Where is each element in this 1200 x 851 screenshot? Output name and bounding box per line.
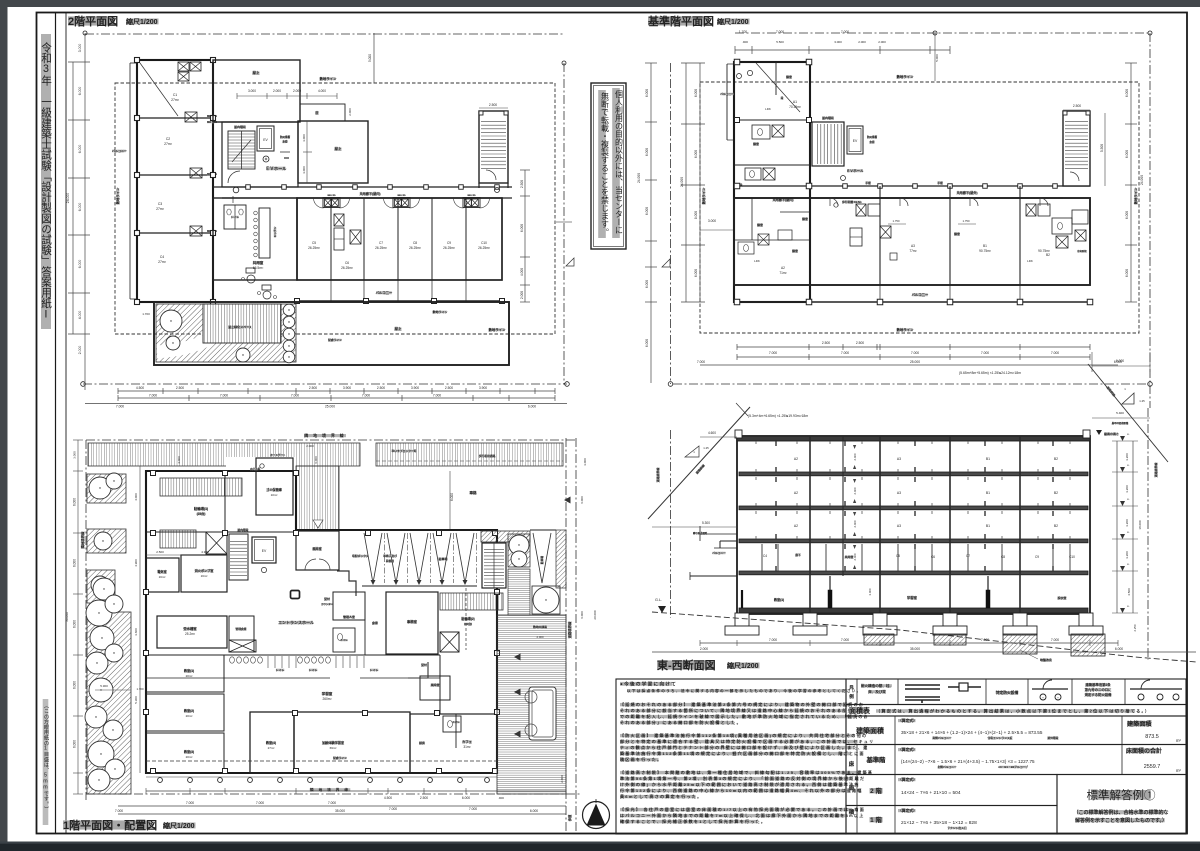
svg-text:3.000: 3.000 — [302, 166, 306, 174]
svg-text:MB・PS: MB・PS — [467, 194, 476, 197]
svg-text:(5.3m+4m+6.65m) ×1.25≒19.93m>1: (5.3m+4m+6.65m) ×1.25≒19.93m>18m — [748, 414, 808, 418]
svg-text:2.000: 2.000 — [306, 444, 314, 448]
svg-text:道路境界線: 道路境界線 — [1153, 462, 1158, 477]
svg-text:ホテル脇: ホテル脇 — [250, 467, 261, 471]
svg-text:8.000: 8.000 — [694, 211, 698, 219]
svg-text:7.000: 7.000 — [149, 394, 157, 398]
svg-text:27m²: 27m² — [158, 260, 167, 264]
svg-text:5.000: 5.000 — [368, 54, 372, 62]
svg-text:C5: C5 — [312, 241, 316, 245]
svg-text:南側バルコニー: 南側バルコニー — [932, 736, 952, 740]
svg-text:での距離を記入し、延焼ラインを破線で図示した。敷地が準防火地: での距離を記入し、延焼ラインを破線で図示した。敷地が準防火地域に指定されているた… — [620, 713, 869, 719]
svg-text:2.500: 2.500 — [377, 386, 385, 390]
svg-text:屋上緑化スペース: 屋上緑化スペース — [228, 324, 252, 329]
svg-text:面: 面 — [849, 784, 855, 792]
svg-text:6.000: 6.000 — [694, 89, 698, 97]
svg-text:車いすブロック一時: 車いすブロック一時 — [391, 449, 416, 453]
svg-text:2.000: 2.000 — [273, 89, 281, 93]
svg-text:2.000: 2.000 — [878, 40, 886, 44]
svg-text:24.000: 24.000 — [1140, 175, 1144, 185]
svg-text:準法第56条第1項第一号、第2項、別表第3の規定により、「前: 準法第56条第1項第一号、第2項、別表第3の規定により、「前面道路の反対側の境界… — [620, 775, 865, 781]
svg-text:3.900: 3.900 — [479, 386, 487, 390]
svg-text:←: ← — [286, 315, 289, 319]
svg-text:基準階: 基準階 — [865, 755, 886, 764]
svg-text:屋内階段: 屋内階段 — [234, 124, 246, 129]
svg-text:カウンター: カウンター — [321, 602, 334, 606]
svg-text:屋上: 屋上 — [334, 146, 342, 151]
svg-text:屋外階段: 屋外階段 — [1047, 736, 1058, 740]
svg-text:消火ポンプ室: 消火ポンプ室 — [194, 568, 214, 573]
svg-text:7.000: 7.000 — [469, 807, 477, 811]
svg-text:第九号のニのロに: 第九号のニのロに — [1084, 687, 1112, 692]
svg-text:C6: C6 — [345, 261, 349, 265]
svg-text:70.25m²: 70.25m² — [789, 105, 801, 109]
svg-text:7.000: 7.000 — [220, 394, 228, 398]
svg-text:2.500: 2.500 — [156, 550, 164, 554]
svg-text:教室(2): 教室(2) — [183, 708, 194, 713]
svg-text:C8: C8 — [413, 241, 417, 245]
svg-text:7.000: 7.000 — [389, 807, 397, 811]
svg-text:縮尺1/200: 縮尺1/200 — [717, 17, 749, 26]
svg-text:トイレ: トイレ — [231, 215, 240, 219]
svg-text:床、及び梁: 床、及び梁 — [868, 689, 886, 694]
svg-text:受付: 受付 — [324, 596, 330, 601]
svg-text:m²: m² — [1176, 738, 1181, 743]
svg-text:3.200: 3.200 — [1125, 485, 1129, 493]
svg-text:25.000: 25.000 — [910, 360, 920, 364]
svg-text:寝室: 寝室 — [953, 231, 960, 236]
svg-text:風除室: 風除室 — [430, 682, 439, 687]
svg-text:7.000: 7.000 — [776, 30, 784, 34]
svg-text:加齢体験学習室: 加齢体験学習室 — [321, 740, 345, 745]
svg-text:1.25: 1.25 — [703, 446, 709, 450]
svg-text:77m²: 77m² — [909, 249, 916, 253]
svg-text:7.000: 7.000 — [981, 638, 989, 642]
svg-text:宅配ボックス: 宅配ボックス — [352, 554, 369, 558]
svg-text:27m²: 27m² — [156, 207, 165, 211]
svg-text:4.000: 4.000 — [520, 268, 524, 276]
svg-text:電気室: 電気室 — [157, 569, 167, 574]
svg-text:バルコ二ー: バルコ二ー — [720, 92, 734, 96]
svg-text:トイレ: トイレ — [369, 668, 378, 672]
svg-text:4.900: 4.900 — [134, 559, 138, 567]
svg-text:C3: C3 — [158, 202, 162, 206]
svg-text:7.000: 7.000 — [362, 394, 370, 398]
svg-text:凡: 凡 — [849, 684, 854, 691]
svg-text:3.000: 3.000 — [248, 89, 256, 93]
svg-text:カフェ: カフェ — [462, 739, 472, 744]
svg-text:27m²: 27m² — [171, 98, 180, 102]
svg-text:2.500: 2.500 — [520, 180, 524, 188]
svg-text:【延焼のおそれのある部分】 建築基準法第2条第六号の規定によ: 【延焼のおそれのある部分】 建築基準法第2条第六号の規定により、建築物の外壁の開… — [620, 701, 864, 707]
svg-text:敷地ライン: 敷地ライン — [432, 309, 447, 314]
svg-text:27m²: 27m² — [164, 142, 173, 146]
svg-text:24.000: 24.000 — [637, 173, 641, 183]
svg-text:1.700: 1.700 — [142, 312, 150, 316]
svg-text:A3: A3 — [911, 244, 915, 248]
svg-text:{14×(24−2) −7×6 − 1.5×6 + 21×(: {14×(24−2) −7×6 − 1.5×6 + 21×(4+3.5) − 1… — [901, 759, 1035, 764]
svg-text:2559.7: 2559.7 — [1144, 764, 1161, 770]
svg-text:4.500: 4.500 — [384, 796, 392, 800]
svg-text:26.25m²: 26.25m² — [478, 246, 490, 250]
svg-text:7.000: 7.000 — [981, 351, 989, 355]
svg-text:7.000: 7.000 — [769, 638, 777, 642]
svg-text:A3: A3 — [897, 524, 901, 528]
svg-text:廊下: 廊下 — [794, 553, 801, 557]
svg-text:確保することで、採光補正係数を1として採光計算を行った。: 確保することで、採光補正係数を1として採光計算を行った。 — [619, 818, 766, 824]
svg-text:25.000: 25.000 — [325, 405, 335, 409]
svg-text:段: 段 — [781, 96, 784, 100]
svg-text:隣 地 境 界 線: 隣 地 境 界 線 — [304, 433, 345, 438]
svg-text:7.000: 7.000 — [1051, 351, 1059, 355]
svg-text:6.000: 6.000 — [1125, 89, 1129, 97]
svg-text:2.000: 2.000 — [700, 647, 708, 651]
svg-text:A2: A2 — [781, 266, 785, 270]
svg-text:6.000: 6.000 — [462, 796, 470, 800]
svg-text:26.25m²: 26.25m² — [375, 246, 387, 250]
svg-text:例: 例 — [849, 693, 854, 700]
svg-text:5.300: 5.300 — [100, 684, 108, 688]
svg-text:27m²: 27m² — [268, 746, 275, 750]
svg-text:管理人室: 管理人室 — [343, 614, 355, 619]
svg-text:バルコ二ー: バルコ二ー — [376, 290, 393, 295]
svg-text:6.000: 6.000 — [645, 339, 649, 347]
svg-text:東-西断面図: 東-西断面図 — [657, 658, 716, 672]
svg-text:90.75m²: 90.75m² — [1038, 249, 1050, 253]
svg-text:共用廊下(屋外): 共用廊下(屋外) — [956, 190, 977, 195]
svg-text:6.000: 6.000 — [78, 203, 82, 212]
svg-text:2.000: 2.000 — [293, 89, 301, 93]
svg-text:2.000: 2.000 — [537, 635, 544, 639]
svg-text:26.25m²: 26.25m² — [443, 246, 455, 250]
svg-text:4.000: 4.000 — [78, 311, 82, 320]
svg-text:2.500: 2.500 — [445, 386, 453, 390]
svg-text:4.500: 4.500 — [136, 386, 144, 390]
svg-text:1.700: 1.700 — [739, 30, 747, 34]
svg-text:G.L.: G.L. — [655, 598, 662, 602]
svg-text:厨房: 厨房 — [419, 740, 425, 745]
svg-text:屋上: 屋上 — [252, 70, 260, 75]
svg-text:敷地ライン: 敷地ライン — [319, 76, 338, 81]
svg-text:26.25m²: 26.25m² — [409, 246, 421, 250]
svg-text:敷地内通路: 敷地内通路 — [533, 625, 547, 629]
svg-text:35.000: 35.000 — [335, 809, 345, 813]
svg-text:令和3年 一級建築士試験「設計製図の試験」答案用紙Ⅰ: 令和3年 一級建築士試験「設計製図の試験」答案用紙Ⅰ — [40, 41, 52, 320]
svg-text:建築基準法第2条: 建築基準法第2条 — [1085, 682, 1111, 687]
svg-text:EV: EV — [853, 139, 858, 143]
svg-text:オートゲート: オートゲート — [270, 453, 286, 457]
svg-text:6.000: 6.000 — [645, 148, 649, 156]
svg-text:7.000: 7.000 — [186, 801, 194, 805]
svg-text:2.400: 2.400 — [853, 553, 857, 560]
svg-text:バルコニー: バルコニー — [112, 148, 127, 153]
svg-text:6.000: 6.000 — [73, 740, 77, 748]
svg-text:3.000: 3.000 — [834, 40, 842, 44]
svg-text:1.750: 1.750 — [963, 219, 970, 223]
svg-text:3.000: 3.000 — [868, 588, 872, 595]
svg-text:B2: B2 — [1046, 253, 1050, 257]
svg-text:4.500: 4.500 — [1127, 588, 1131, 596]
svg-text:873.5: 873.5 — [1145, 734, 1159, 740]
svg-text:歩行距離 19.5m: 歩行距離 19.5m — [842, 200, 862, 204]
svg-text:7.000: 7.000 — [291, 394, 299, 398]
svg-text:エントランスホール: エントランスホール — [278, 619, 314, 625]
svg-text:2.000: 2.000 — [520, 291, 524, 299]
svg-text:3.200: 3.200 — [1125, 453, 1129, 461]
svg-text:16m²: 16m² — [159, 575, 166, 579]
svg-text:屋内階段: 屋内階段 — [822, 115, 834, 120]
svg-text:4.000: 4.000 — [134, 493, 138, 501]
svg-text:トイレ: トイレ — [275, 668, 284, 672]
svg-text:2.500: 2.500 — [420, 796, 428, 800]
svg-text:B1: B1 — [986, 457, 990, 461]
svg-text:縮尺1/200: 縮尺1/200 — [163, 821, 195, 830]
svg-text:（算定式）: （算定式） — [898, 808, 917, 813]
svg-text:2.000: 2.000 — [348, 108, 352, 116]
svg-text:6.000: 6.000 — [694, 150, 698, 158]
svg-text:●今後の学習に向けて: ●今後の学習に向けて — [620, 681, 677, 688]
svg-text:敷地ライン: 敷地ライン — [488, 327, 507, 332]
svg-text:7.000: 7.000 — [697, 360, 705, 364]
svg-text:無断で転載・複製することを禁じます。: 無断で転載・複製することを禁じます。 — [601, 91, 610, 236]
svg-text:26.25m²: 26.25m² — [341, 266, 353, 270]
svg-text:B1: B1 — [986, 524, 990, 528]
svg-text:6.000: 6.000 — [78, 145, 82, 154]
svg-text:配慮ライン: 配慮ライン — [328, 338, 342, 342]
svg-text:B1: B1 — [986, 491, 990, 495]
svg-text:LDK: LDK — [1027, 259, 1033, 263]
svg-text:6.000: 6.000 — [580, 496, 584, 504]
svg-text:道路境界線: 道路境界線 — [567, 621, 572, 639]
svg-text:歩道: 歩道 — [567, 814, 572, 821]
svg-text:7.000: 7.000 — [116, 405, 124, 409]
svg-text:駐輪場(1): 駐輪場(1) — [194, 506, 208, 511]
svg-text:1.25: 1.25 — [1139, 399, 1145, 403]
svg-text:3.600: 3.600 — [134, 628, 138, 636]
svg-text:住宅エントランス庇: 住宅エントランス庇 — [987, 736, 1012, 740]
svg-text:部分とを特定の基準に適合する壁、建具又は特定防火設備で区画す: 部分とを特定の基準に適合する壁、建具又は特定防火設備で区画する必要がある。この計… — [620, 738, 874, 744]
svg-text:C9: C9 — [1035, 555, 1039, 559]
svg-text:【防火区画】 建築基準法施行令第112条第18項(異種用途区: 【防火区画】 建築基準法施行令第112条第18項(異種用途区画)の規定により、共… — [620, 732, 867, 738]
svg-text:6.000: 6.000 — [645, 280, 649, 288]
svg-text:1階平面図・配置図: 1階平面図・配置図 — [63, 818, 157, 832]
svg-text:2.400: 2.400 — [853, 487, 857, 494]
svg-text:25.2m²: 25.2m² — [185, 632, 195, 636]
svg-text:+: + — [1057, 696, 1059, 700]
svg-text:2.500: 2.500 — [489, 103, 497, 107]
svg-text:2.500: 2.500 — [1073, 104, 1081, 108]
svg-text:4.600: 4.600 — [708, 431, 716, 435]
svg-text:6.000: 6.000 — [520, 224, 524, 232]
svg-text:築基準法施行令第112条第11項の規定により、竪穴区画部分の: 築基準法施行令第112条第11項の規定により、竪穴区画部分の開口部を特定防火設備… — [619, 750, 865, 756]
svg-text:屋内階段: 屋内階段 — [237, 528, 248, 532]
svg-text:教室(1): 教室(1) — [183, 668, 194, 673]
svg-text:3.000: 3.000 — [73, 451, 77, 459]
svg-text:行令第132条により、西側道路の中心線から10m以内の範囲は: 行令第132条により、西側道路の中心線から10m以内の範囲は道路幅員4m、それ以… — [619, 787, 863, 793]
svg-text:員6mとして高さの算定を行った。: 員6mとして高さの算定を行った。 — [619, 793, 702, 799]
svg-text:寝室: 寝室 — [752, 141, 759, 146]
svg-text:A2: A2 — [794, 457, 798, 461]
svg-text:6.000: 6.000 — [78, 87, 82, 96]
svg-text:個人利用の目的以外には、当センターに: 個人利用の目的以外には、当センターに — [615, 89, 624, 234]
svg-text:学習室: 学習室 — [907, 595, 918, 600]
svg-text:2階平面図: 2階平面図 — [68, 14, 118, 28]
svg-text:北側バルコニー: 北側バルコニー — [937, 765, 957, 769]
svg-text:31m²: 31m² — [463, 745, 470, 749]
svg-text:3.900: 3.900 — [343, 386, 351, 390]
svg-text:（算定式は、算出過程がわかるものとする。算出結果は、小数点以: （算定式は、算出過程がわかるものとする。算出結果は、小数点以下第1位までとし、第… — [876, 708, 1150, 715]
svg-text:面積表: 面積表 — [849, 706, 871, 715]
svg-text:2.000: 2.000 — [78, 346, 82, 355]
svg-text:2.500: 2.500 — [176, 386, 184, 390]
svg-text:倉庫: 倉庫 — [869, 140, 875, 144]
svg-text:C4: C4 — [160, 255, 164, 259]
svg-text:寝室: 寝室 — [785, 74, 792, 79]
svg-text:5.000: 5.000 — [935, 54, 939, 62]
svg-text:縮尺1/200: 縮尺1/200 — [727, 661, 759, 670]
svg-text:A1: A1 — [793, 100, 797, 104]
svg-text:EV: EV — [263, 138, 268, 142]
svg-text:解答例を示すことを意図したものです。）: 解答例を示すことを意図したものです。） — [1075, 817, 1167, 824]
svg-text:C10: C10 — [481, 241, 487, 245]
svg-text:2 階: 2 階 — [870, 786, 882, 795]
svg-text:2.250: 2.250 — [1133, 624, 1137, 631]
svg-text:受水槽室: 受水槽室 — [183, 626, 197, 631]
svg-text:3.900: 3.900 — [411, 386, 419, 390]
svg-text:B2: B2 — [1054, 524, 1058, 528]
svg-text:2.000: 2.000 — [560, 775, 564, 783]
svg-text:積: 積 — [848, 808, 855, 816]
svg-text:バルコ二ー: バルコ二ー — [912, 292, 929, 297]
svg-text:敷地ライン: 敷地ライン — [896, 327, 915, 332]
svg-text:住宅防犯: 住宅防犯 — [1077, 249, 1087, 253]
svg-text:バルコニー: バルコニー — [712, 551, 726, 555]
svg-text:地盤改良: 地盤改良 — [1040, 657, 1052, 662]
svg-text:受付: 受付 — [421, 662, 427, 667]
svg-text:トイレ: トイレ — [308, 668, 317, 672]
svg-text:A2: A2 — [794, 524, 798, 528]
svg-text:MB・PS: MB・PS — [327, 194, 336, 197]
svg-text:7.000: 7.000 — [841, 638, 849, 642]
svg-text:7.000: 7.000 — [256, 801, 264, 805]
svg-text:教室(3): 教室(3) — [183, 749, 194, 754]
svg-text:6.000: 6.000 — [645, 89, 649, 97]
svg-text:B2: B2 — [1054, 457, 1058, 461]
svg-text:C2: C2 — [166, 137, 170, 141]
svg-text:駐車場: 駐車場 — [540, 556, 544, 565]
svg-text:20m²: 20m² — [186, 755, 193, 759]
svg-text:寝室: 寝室 — [801, 216, 808, 221]
svg-text:20m²: 20m² — [186, 674, 193, 678]
svg-text:260m²: 260m² — [322, 697, 331, 701]
svg-text:車路: 車路 — [469, 490, 477, 495]
svg-text:6.000: 6.000 — [73, 559, 77, 567]
svg-text:建築面積: 建築面積 — [856, 726, 885, 735]
svg-text:7.000: 7.000 — [769, 351, 777, 355]
svg-text:脱衣室: 脱衣室 — [1056, 595, 1066, 600]
svg-text:寝室: 寝室 — [791, 248, 798, 253]
svg-text:6.000: 6.000 — [1116, 359, 1124, 363]
svg-text:6.000: 6.000 — [580, 611, 584, 619]
svg-text:4.000: 4.000 — [177, 456, 181, 464]
svg-text:7.000: 7.000 — [115, 809, 123, 813]
svg-text:2.400: 2.400 — [853, 453, 857, 460]
svg-text:26.25m²: 26.25m² — [308, 246, 320, 250]
svg-text:6.000: 6.000 — [645, 207, 649, 215]
svg-text:【道路高さ制限】 本問題の敷地は、第一種住居地域で、斜線勾配: 【道路高さ制限】 本問題の敷地は、第一種住居地域で、斜線勾配は1.25、容積率は… — [620, 769, 873, 775]
svg-text:それのある部分」にある開口部を防火設備とした。: それのある部分」にある開口部を防火設備とした。 — [620, 719, 742, 725]
svg-text:防災備蓄: 防災備蓄 — [867, 135, 878, 139]
svg-text:防災備蓄: 防災備蓄 — [280, 135, 291, 139]
svg-text:6.000: 6.000 — [1125, 150, 1129, 158]
svg-text:6.000: 6.000 — [314, 456, 318, 464]
svg-text:テナント出入口: テナント出入口 — [947, 826, 967, 830]
svg-text:A3: A3 — [897, 457, 901, 461]
svg-text:MB・PS: MB・PS — [397, 194, 406, 197]
svg-text:寝室: 寝室 — [756, 222, 763, 227]
svg-text:（この方眼用紙の1目盛は、5mmです。）: （この方眼用紙の1目盛は、5mmです。） — [43, 703, 50, 812]
svg-text:駐車場: 駐車場 — [438, 556, 447, 561]
svg-text:1.750: 1.750 — [893, 219, 900, 223]
svg-text:け外側の線」から水平距離25m以下の範囲において道路高さ制限: け外側の線」から水平距離25m以下の範囲において道路高さ制限が適用される。西側は… — [620, 781, 860, 787]
svg-text:管理倉庫: 管理倉庫 — [234, 627, 246, 631]
svg-text:2.500: 2.500 — [856, 341, 864, 345]
svg-text:6.000: 6.000 — [528, 405, 536, 409]
svg-text:5.300: 5.300 — [134, 696, 138, 704]
svg-text:C1: C1 — [173, 93, 177, 97]
svg-text:18.000: 18.000 — [1138, 520, 1142, 530]
svg-text:35.000: 35.000 — [910, 647, 920, 651]
svg-text:10m²: 10m² — [271, 493, 278, 497]
svg-text:（算定式）: （算定式） — [898, 718, 917, 723]
svg-text:（この標準解答例は、合格水準の標準的な: （この標準解答例は、合格水準の標準的な — [1073, 809, 1168, 816]
svg-text:隣り展道通障: 隣り展道通障 — [693, 531, 708, 535]
svg-text:LDK: LDK — [765, 107, 771, 111]
svg-text:7.000: 7.000 — [911, 351, 919, 355]
svg-text:69m²: 69m² — [330, 746, 337, 750]
svg-text:風除室: 風除室 — [312, 546, 322, 551]
svg-text:建築面積: 建築面積 — [1126, 720, 1153, 728]
svg-text:ティの観点から住戸部門とテナント部分の界壁には開口部を設けず: ティの観点から住戸部門とテナント部分の界壁には開口部を設けず、床及び壁により区画… — [620, 744, 869, 750]
svg-text:6.000: 6.000 — [530, 809, 538, 813]
svg-text:縮尺1/200: 縮尺1/200 — [126, 17, 158, 26]
svg-text:倉庫: 倉庫 — [282, 140, 288, 144]
svg-text:2.400: 2.400 — [853, 520, 857, 527]
svg-text:6.000: 6.000 — [450, 493, 454, 501]
svg-text:35×18 + 21×6 + 14×6 + (1.2−1)×: 35×18 + 21×6 + 14×6 + (1.2−1)×24 + (4−1)… — [901, 730, 1043, 735]
svg-text:7.000: 7.000 — [841, 30, 849, 34]
svg-text:3.000: 3.000 — [708, 219, 716, 223]
svg-text:6.000: 6.000 — [78, 260, 82, 269]
svg-text:倉庫: 倉庫 — [371, 620, 378, 625]
svg-text:5.400: 5.400 — [1116, 411, 1124, 415]
svg-text:6.000: 6.000 — [1125, 269, 1129, 277]
svg-text:（算定式）: （算定式） — [898, 777, 917, 782]
svg-text:24.000: 24.000 — [66, 193, 70, 203]
svg-text:7.000: 7.000 — [328, 801, 336, 805]
svg-text:床面積の合計: 床面積の合計 — [1126, 747, 1162, 755]
svg-text:3.200: 3.200 — [1125, 519, 1129, 527]
svg-text:道路境界線: 道路境界線 — [655, 467, 660, 482]
svg-text:A3・B1・B2アルコーブ: A3・B1・B2アルコーブ — [998, 765, 1028, 769]
svg-text:荷捌用: 荷捌用 — [386, 559, 395, 563]
svg-text:3.000: 3.000 — [302, 134, 306, 142]
svg-text:キッチン: キッチン — [273, 226, 277, 237]
svg-text:耐火構造の壁、柱、: 耐火構造の壁、柱、 — [861, 683, 893, 688]
svg-text:ゴミ保管庫: ゴミ保管庫 — [266, 487, 283, 492]
svg-text:B1: B1 — [983, 244, 987, 248]
svg-text:.900: .900 — [498, 796, 504, 800]
